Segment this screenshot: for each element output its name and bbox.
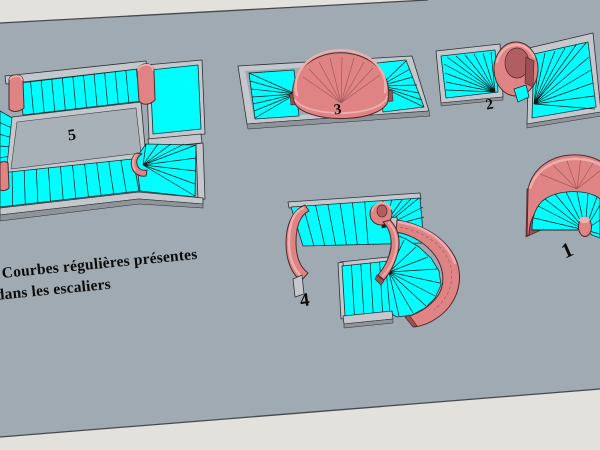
stair4-mid-cap-hole [377, 205, 387, 217]
stair-4-label: 4 [299, 290, 311, 310]
stair1-post-rim [579, 217, 590, 223]
viewport-3d[interactable]: 5 3 2 4 1 Courbes régulières présentes d… [0, 0, 600, 450]
stair-3-label: 3 [333, 103, 342, 119]
stair5-landing [150, 65, 201, 134]
scene-svg [0, 0, 600, 450]
stair2-cylinder-opening [525, 57, 534, 87]
stair-5-model [0, 60, 205, 221]
stair5-corner-post-wall [0, 162, 9, 191]
stair5-right-stringer [196, 143, 205, 200]
